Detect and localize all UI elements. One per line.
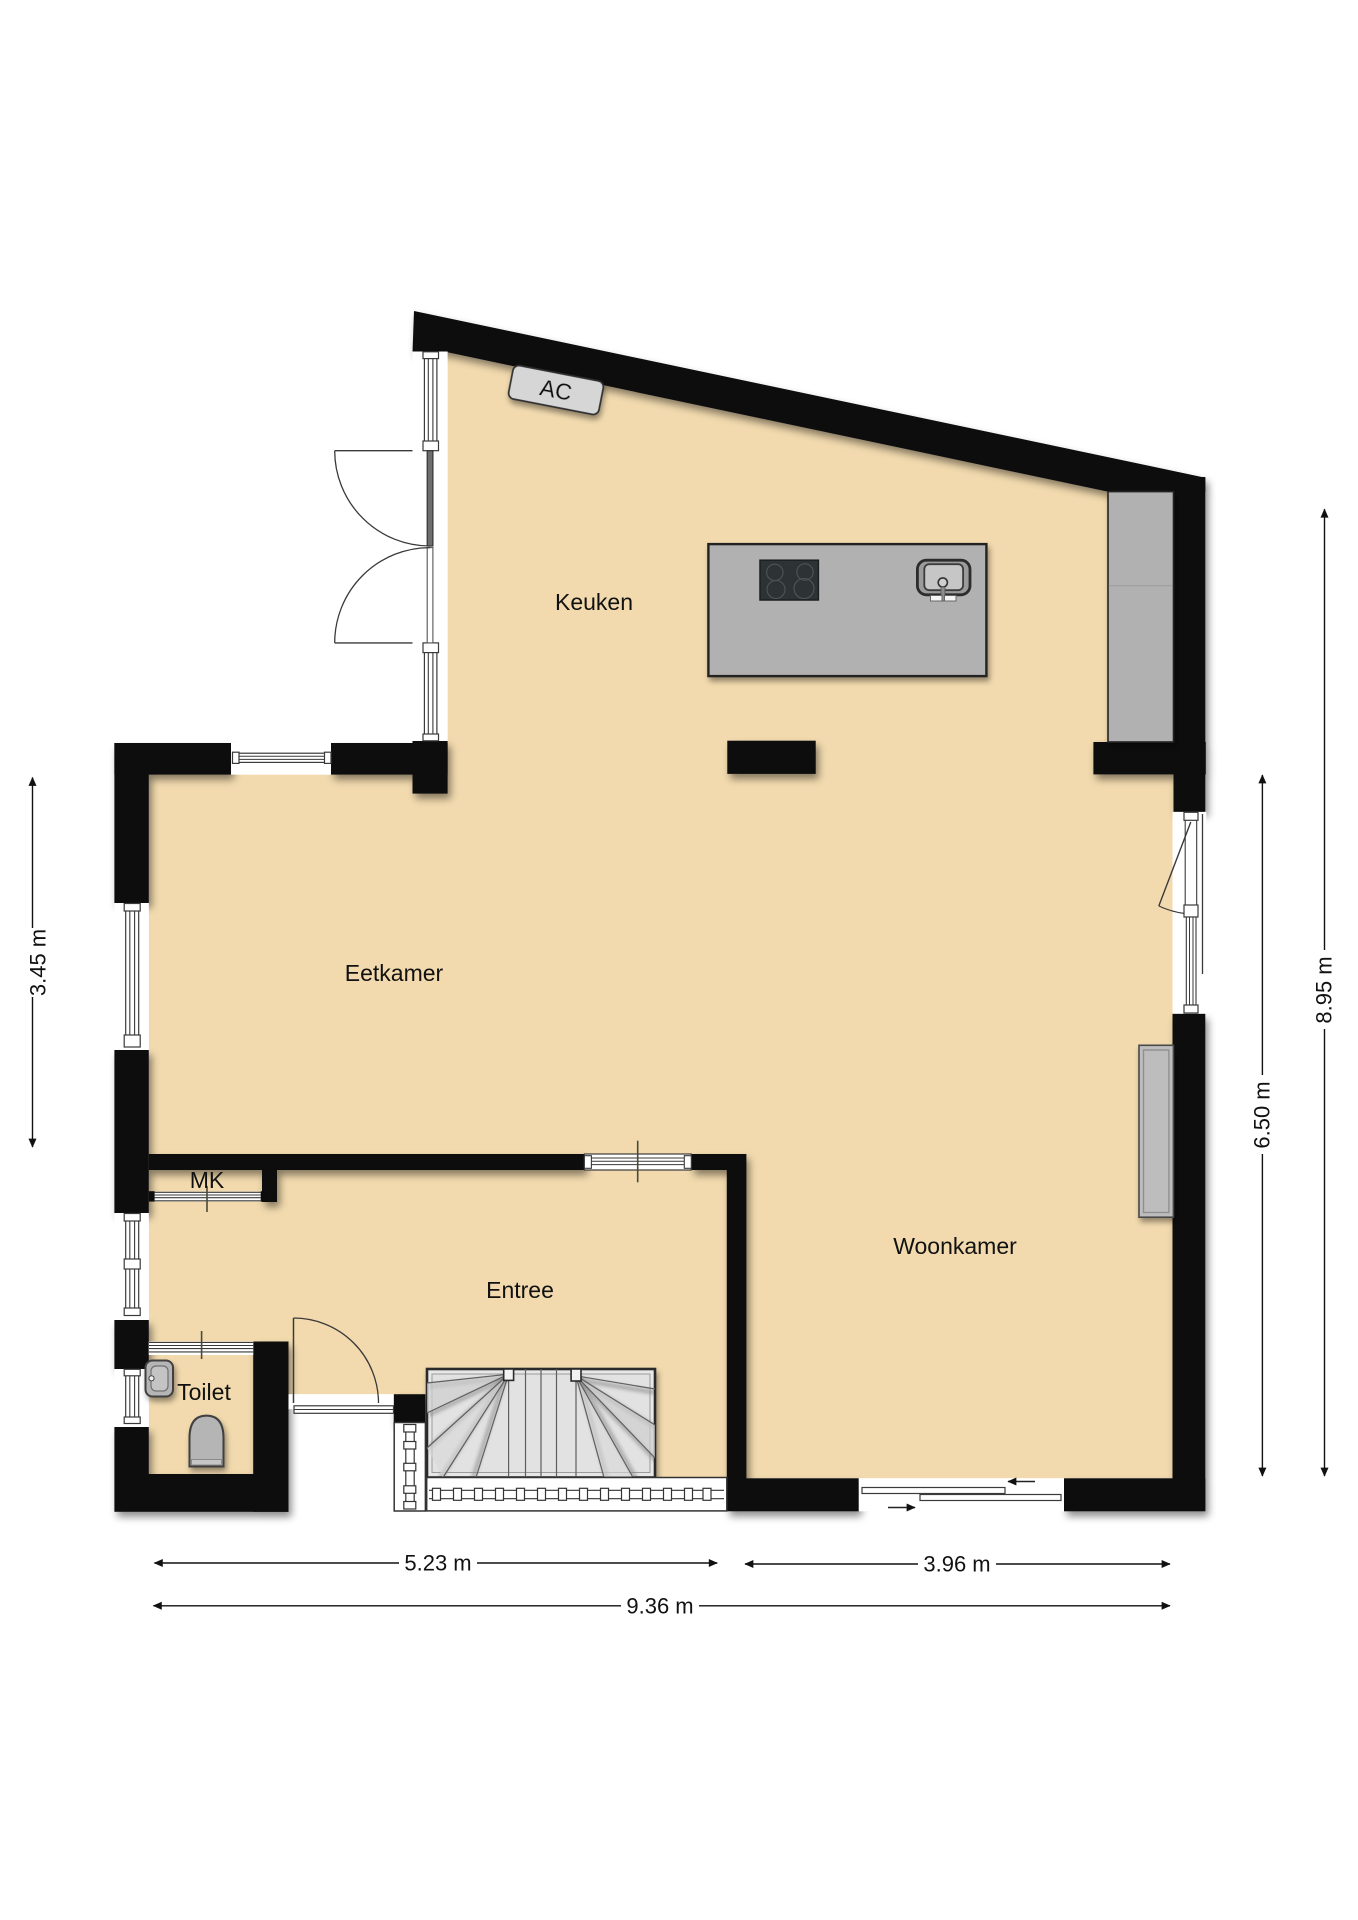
svg-text:6.50 m: 6.50 m [1249,1081,1274,1148]
svg-text:3.96 m: 3.96 m [923,1552,990,1577]
svg-text:3.45 m: 3.45 m [25,929,50,996]
svg-text:9.36 m: 9.36 m [626,1593,693,1618]
svg-text:Keuken: Keuken [555,589,633,615]
svg-text:5.23 m: 5.23 m [404,1551,471,1576]
svg-text:Woonkamer: Woonkamer [893,1233,1017,1259]
svg-text:MK: MK [190,1167,225,1193]
svg-text:Eetkamer: Eetkamer [345,960,444,986]
svg-text:8.95 m: 8.95 m [1312,956,1337,1023]
svg-text:Toilet: Toilet [177,1379,231,1405]
svg-text:Entree: Entree [486,1277,554,1303]
